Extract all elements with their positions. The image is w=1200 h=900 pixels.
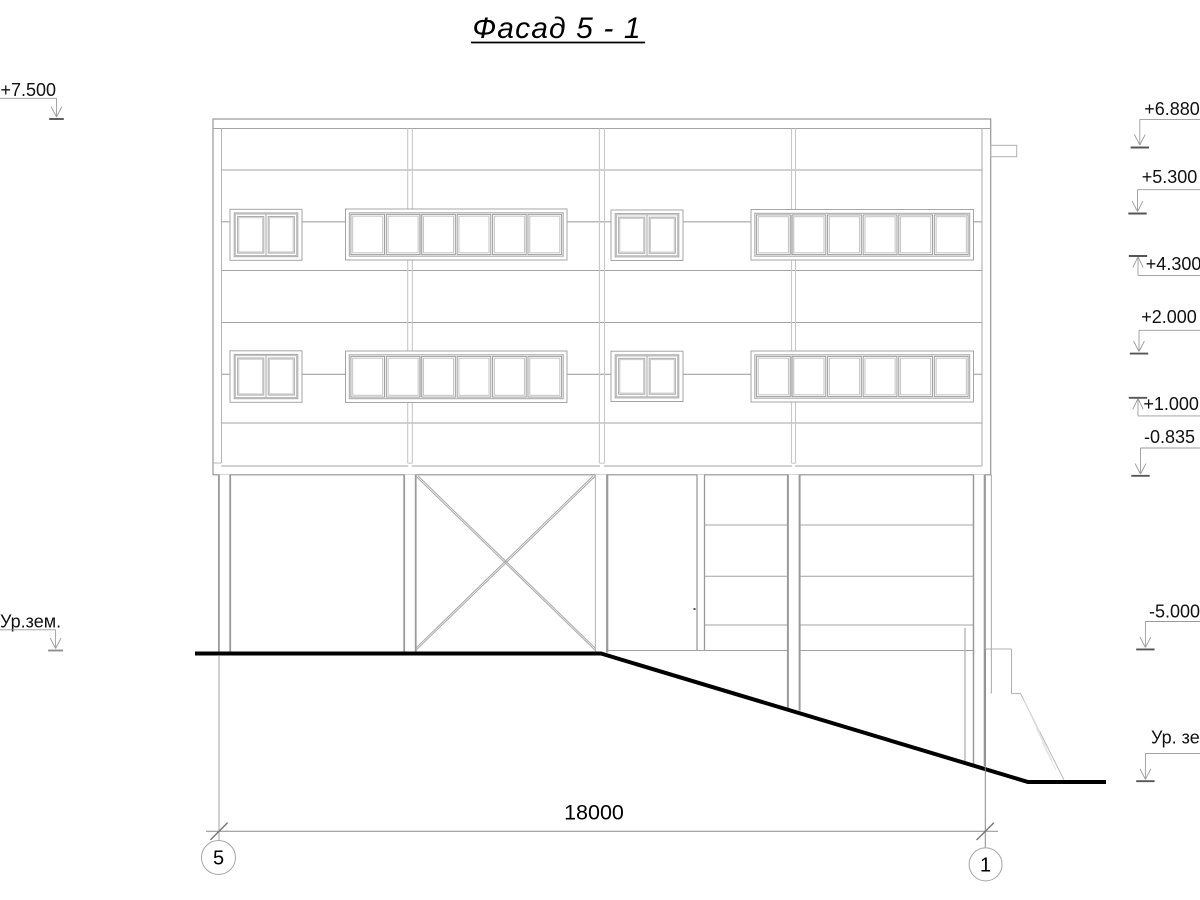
svg-text:+1.000: +1.000 <box>1143 394 1199 414</box>
svg-text:5: 5 <box>213 848 224 870</box>
svg-text:Ур. зем.: Ур. зем. <box>1151 728 1200 748</box>
svg-text:+4.300: +4.300 <box>1146 254 1200 274</box>
svg-text:18000: 18000 <box>564 801 624 825</box>
svg-text:Фасад 5 - 1: Фасад 5 - 1 <box>472 12 641 45</box>
svg-text:1: 1 <box>980 854 991 876</box>
svg-text:Ур.зем.: Ур.зем. <box>0 612 61 632</box>
svg-text:-0.835: -0.835 <box>1144 427 1195 447</box>
svg-text:-5.000: -5.000 <box>1149 602 1200 622</box>
svg-text:+6.880: +6.880 <box>1144 99 1200 119</box>
svg-text:+5.300: +5.300 <box>1142 167 1198 187</box>
svg-text:+7.500: +7.500 <box>1 80 57 100</box>
svg-text:+2.000: +2.000 <box>1141 307 1197 327</box>
